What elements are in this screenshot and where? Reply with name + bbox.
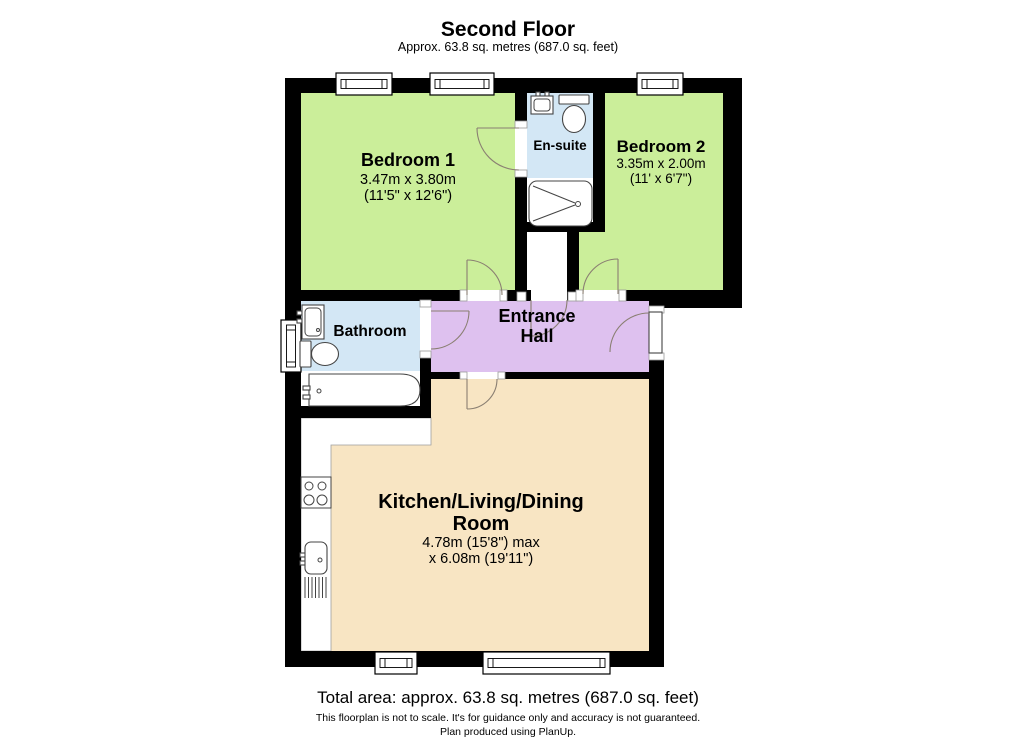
entrance-hall-label-line2: Hall: [520, 326, 553, 346]
shower-icon: [529, 181, 592, 226]
bedroom2-dims-imperial: (11' x 6'7"): [630, 171, 692, 186]
bathroom-label: Bathroom: [333, 323, 406, 340]
window-icon: [281, 320, 301, 372]
page-title: Second Floor: [441, 18, 575, 41]
window-icon: [430, 73, 494, 95]
bedroom1-dims-metric: 3.47m x 3.80m: [360, 172, 456, 188]
bedroom2-dims-metric: 3.35m x 2.00m: [616, 156, 705, 171]
bedroom1-dims-imperial: (11'5" x 12'6"): [364, 188, 452, 204]
window-icon: [637, 73, 683, 95]
ensuite-label: En-suite: [533, 138, 587, 153]
bedroom1-label: Bedroom 1: [361, 150, 455, 170]
window-icon: [336, 73, 392, 95]
page-subtitle: Approx. 63.8 sq. metres (687.0 sq. feet): [398, 40, 618, 54]
bathroom-toilet-icon: [300, 341, 339, 367]
floorplan-page: Second Floor Approx. 63.8 sq. metres (68…: [0, 0, 1024, 745]
credit-text: Plan produced using PlanUp.: [440, 726, 576, 738]
kitchen-label-line1: Kitchen/Living/Dining: [378, 491, 584, 513]
kitchen-label-line2: Room: [453, 513, 510, 535]
bathtub-icon: [303, 374, 420, 406]
kitchen-dims-line2: x 6.08m (19'11"): [429, 551, 533, 567]
window-icon: [375, 652, 417, 674]
entrance-hall-label-line1: Entrance: [498, 306, 575, 326]
total-area-label: Total area: approx. 63.8 sq. metres (687…: [317, 688, 699, 707]
floorplan-drawing: Second Floor Approx. 63.8 sq. metres (68…: [0, 0, 1024, 745]
bedroom2-label: Bedroom 2: [617, 137, 706, 156]
window-icon: [483, 652, 610, 674]
disclaimer-text: This floorplan is not to scale. It's for…: [316, 712, 700, 724]
kitchen-dims-line1: 4.78m (15'8") max: [422, 535, 540, 551]
